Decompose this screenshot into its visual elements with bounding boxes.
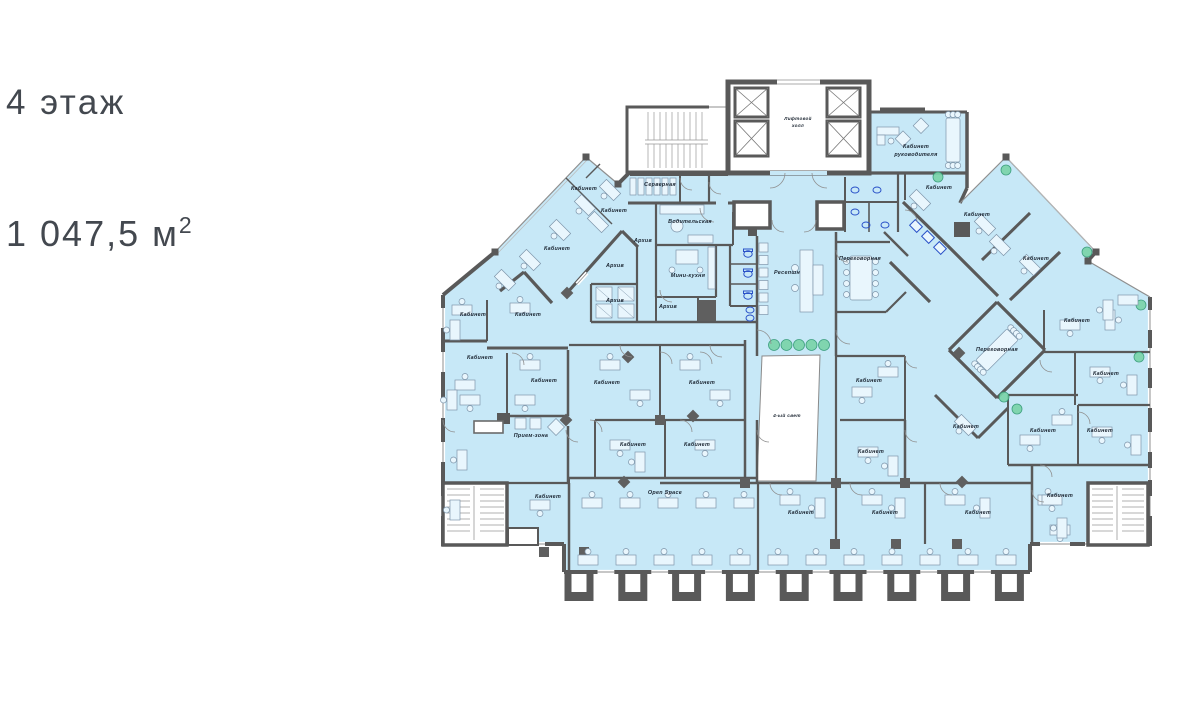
svg-text:Кабинет: Кабинет (926, 184, 952, 191)
svg-text:Кабинет: Кабинет (620, 441, 646, 448)
svg-text:Open Space: Open Space (648, 490, 682, 496)
svg-text:Кабинет: Кабинет (515, 311, 541, 318)
svg-text:руководителя: руководителя (893, 152, 938, 158)
svg-text:Кабинет: Кабинет (1087, 427, 1113, 434)
svg-text:Кабинет: Кабинет (689, 379, 715, 386)
svg-text:Кабинет: Кабинет (601, 207, 627, 214)
svg-text:холл: холл (791, 123, 804, 128)
svg-text:4-ый свет: 4-ый свет (772, 412, 801, 419)
svg-text:Кабинет: Кабинет (460, 311, 486, 318)
svg-text:Кабинет: Кабинет (856, 377, 882, 384)
svg-text:Кабинет: Кабинет (531, 377, 557, 384)
svg-text:Кабинет: Кабинет (788, 509, 814, 516)
svg-text:Кабинет: Кабинет (535, 493, 561, 500)
svg-text:Ресепшн: Ресепшн (774, 270, 800, 276)
svg-text:Архив: Архив (605, 263, 625, 269)
svg-text:Кабинет: Кабинет (858, 448, 884, 455)
svg-text:Кабинет: Кабинет (1093, 370, 1119, 377)
svg-text:Кабинет: Кабинет (953, 423, 979, 430)
svg-text:Кабинет: Кабинет (1064, 317, 1090, 324)
svg-text:Лифтовой: Лифтовой (783, 115, 812, 121)
svg-text:Кабинет: Кабинет (1023, 255, 1049, 262)
svg-text:Серверная: Серверная (644, 182, 676, 188)
svg-text:Кабинет: Кабинет (903, 143, 929, 150)
svg-text:Мини-кухня: Мини-кухня (671, 273, 706, 279)
svg-text:Кабинет: Кабинет (872, 509, 898, 516)
svg-text:Архив: Архив (605, 298, 625, 304)
svg-text:Переговорная: Переговорная (976, 347, 1018, 353)
svg-text:Кабинет: Кабинет (571, 185, 597, 192)
svg-text:Кабинет: Кабинет (467, 354, 493, 361)
svg-text:Кабинет: Кабинет (544, 245, 570, 252)
svg-text:Кабинет: Кабинет (1030, 427, 1056, 434)
svg-text:Кабинет: Кабинет (964, 211, 990, 218)
svg-text:Архив: Архив (633, 238, 653, 244)
svg-text:Переговорная: Переговорная (839, 256, 881, 262)
svg-text:Кабинет: Кабинет (965, 509, 991, 516)
svg-text:Водительская: Водительская (668, 219, 712, 225)
svg-text:Архив: Архив (658, 304, 678, 310)
svg-text:Прием-зона: Прием-зона (514, 433, 548, 439)
svg-text:Кабинет: Кабинет (684, 441, 710, 448)
svg-text:Кабинет: Кабинет (1047, 492, 1073, 499)
svg-text:Кабинет: Кабинет (594, 379, 620, 386)
